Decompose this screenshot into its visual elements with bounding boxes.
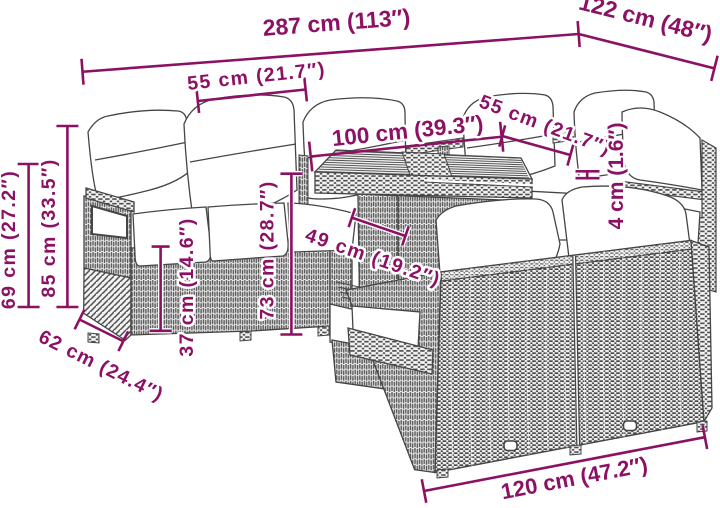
svg-text:69 cm (27.2″): 69 cm (27.2″)	[0, 170, 20, 309]
svg-text:85 cm (33.5″): 85 cm (33.5″)	[38, 158, 60, 297]
svg-text:4 cm (1.6″): 4 cm (1.6″)	[605, 123, 628, 230]
svg-text:73 cm (28.7″): 73 cm (28.7″)	[257, 180, 279, 319]
svg-text:37 cm (14.6″): 37 cm (14.6″)	[176, 217, 198, 356]
